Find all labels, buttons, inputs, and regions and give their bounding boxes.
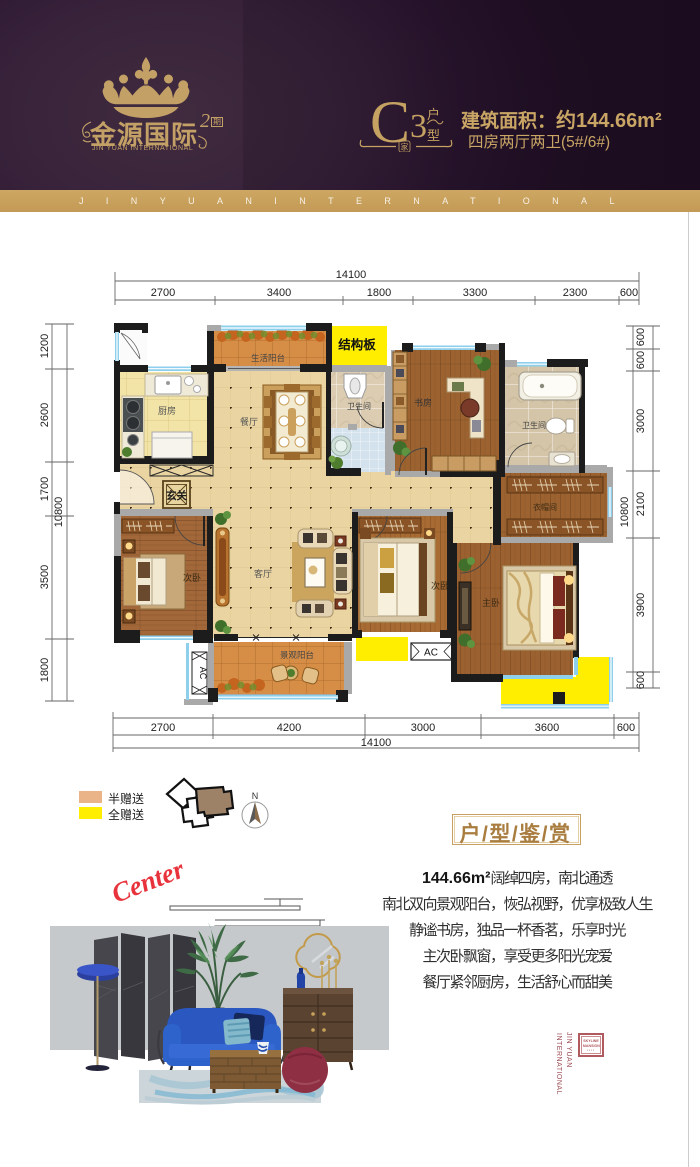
svg-text:14100: 14100 [336, 269, 367, 281]
svg-text:结构板: 结构板 [338, 337, 376, 352]
svg-text:卫生间: 卫生间 [522, 420, 546, 430]
svg-text:3500: 3500 [39, 565, 51, 589]
svg-text:10800: 10800 [619, 497, 631, 528]
svg-text:3400: 3400 [267, 287, 291, 299]
svg-text:3000: 3000 [635, 409, 647, 433]
svg-text:2300: 2300 [563, 287, 587, 299]
svg-text:2700: 2700 [151, 287, 175, 299]
svg-text:3300: 3300 [463, 287, 487, 299]
svg-text:3000: 3000 [411, 722, 435, 734]
svg-text:客厅: 客厅 [254, 568, 272, 579]
svg-text:餐厅: 餐厅 [240, 416, 258, 427]
svg-text:2100: 2100 [635, 492, 647, 516]
svg-text:2700: 2700 [151, 722, 175, 734]
svg-text:书房: 书房 [414, 397, 432, 408]
svg-text:600: 600 [620, 287, 638, 299]
svg-text:Center: Center [107, 855, 188, 909]
svg-text:N: N [252, 791, 259, 801]
svg-text:600: 600 [635, 671, 647, 689]
svg-text:厨房: 厨房 [158, 405, 176, 416]
svg-text:景观阳台: 景观阳台 [280, 650, 314, 660]
svg-text:衣帽间: 衣帽间 [533, 502, 557, 512]
svg-text:AC: AC [424, 648, 438, 659]
svg-text:10800: 10800 [53, 497, 65, 528]
svg-text:600: 600 [617, 722, 635, 734]
svg-text:玄关: 玄关 [166, 489, 187, 502]
svg-text:2600: 2600 [39, 403, 51, 427]
svg-text:主卧: 主卧 [482, 597, 500, 608]
svg-text:1800: 1800 [367, 287, 391, 299]
svg-text:1800: 1800 [39, 658, 51, 682]
svg-text:600: 600 [635, 328, 647, 346]
svg-text:次卧: 次卧 [183, 572, 201, 583]
svg-text:4200: 4200 [277, 722, 301, 734]
svg-text:14100: 14100 [361, 737, 392, 749]
svg-text:卫生间: 卫生间 [347, 401, 371, 411]
svg-text:AC: AC [198, 667, 208, 680]
svg-text:600: 600 [635, 351, 647, 369]
svg-text:1200: 1200 [39, 334, 51, 358]
svg-text:3900: 3900 [635, 593, 647, 617]
svg-text:3600: 3600 [535, 722, 559, 734]
svg-text:次卧: 次卧 [431, 580, 449, 591]
svg-text:1700: 1700 [39, 477, 51, 501]
svg-text:生活阳台: 生活阳台 [251, 353, 285, 363]
